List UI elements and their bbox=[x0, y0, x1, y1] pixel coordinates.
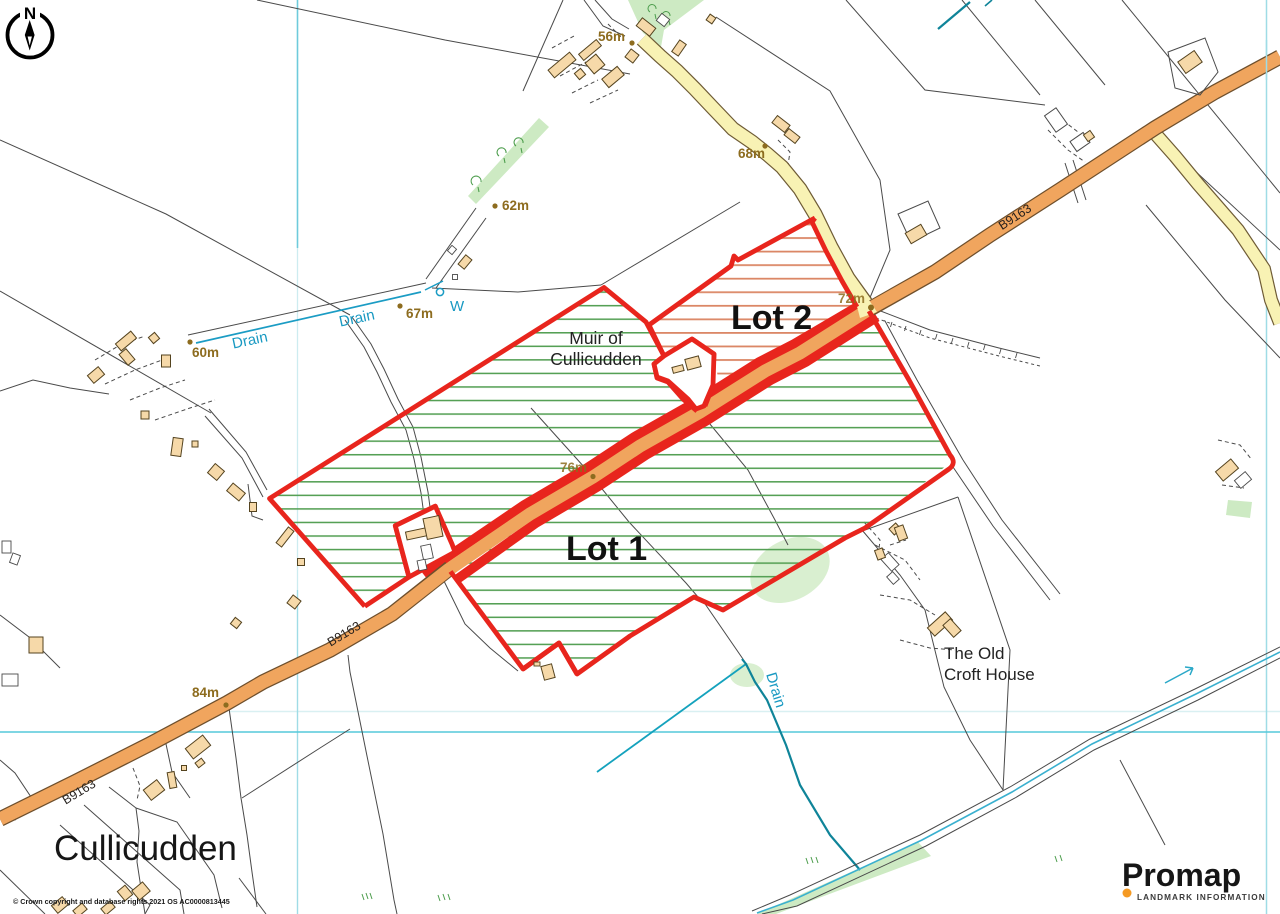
svg-text:68m: 68m bbox=[738, 146, 765, 161]
svg-text:LANDMARK INFORMATION: LANDMARK INFORMATION bbox=[1137, 893, 1266, 902]
svg-text:Croft House: Croft House bbox=[944, 665, 1035, 684]
svg-text:Lot 2: Lot 2 bbox=[731, 299, 812, 337]
svg-text:Cullicudden: Cullicudden bbox=[550, 349, 641, 369]
svg-text:76m: 76m bbox=[560, 460, 587, 475]
svg-text:N: N bbox=[24, 4, 36, 23]
svg-text:Promap: Promap bbox=[1122, 857, 1241, 893]
svg-text:84m: 84m bbox=[192, 685, 219, 700]
svg-text:72m: 72m bbox=[838, 291, 865, 306]
svg-text:60m: 60m bbox=[192, 345, 219, 360]
svg-text:Cullicudden: Cullicudden bbox=[54, 829, 237, 868]
svg-text:Muir of: Muir of bbox=[569, 328, 623, 348]
svg-text:62m: 62m bbox=[502, 198, 529, 213]
svg-text:56m: 56m bbox=[598, 29, 625, 44]
svg-text:The Old: The Old bbox=[944, 644, 1004, 663]
svg-text:Lot 1: Lot 1 bbox=[566, 530, 647, 568]
svg-text:67m: 67m bbox=[406, 306, 433, 321]
svg-text:© Crown copyright and database: © Crown copyright and database rights 20… bbox=[13, 897, 230, 906]
svg-text:W: W bbox=[450, 298, 465, 315]
